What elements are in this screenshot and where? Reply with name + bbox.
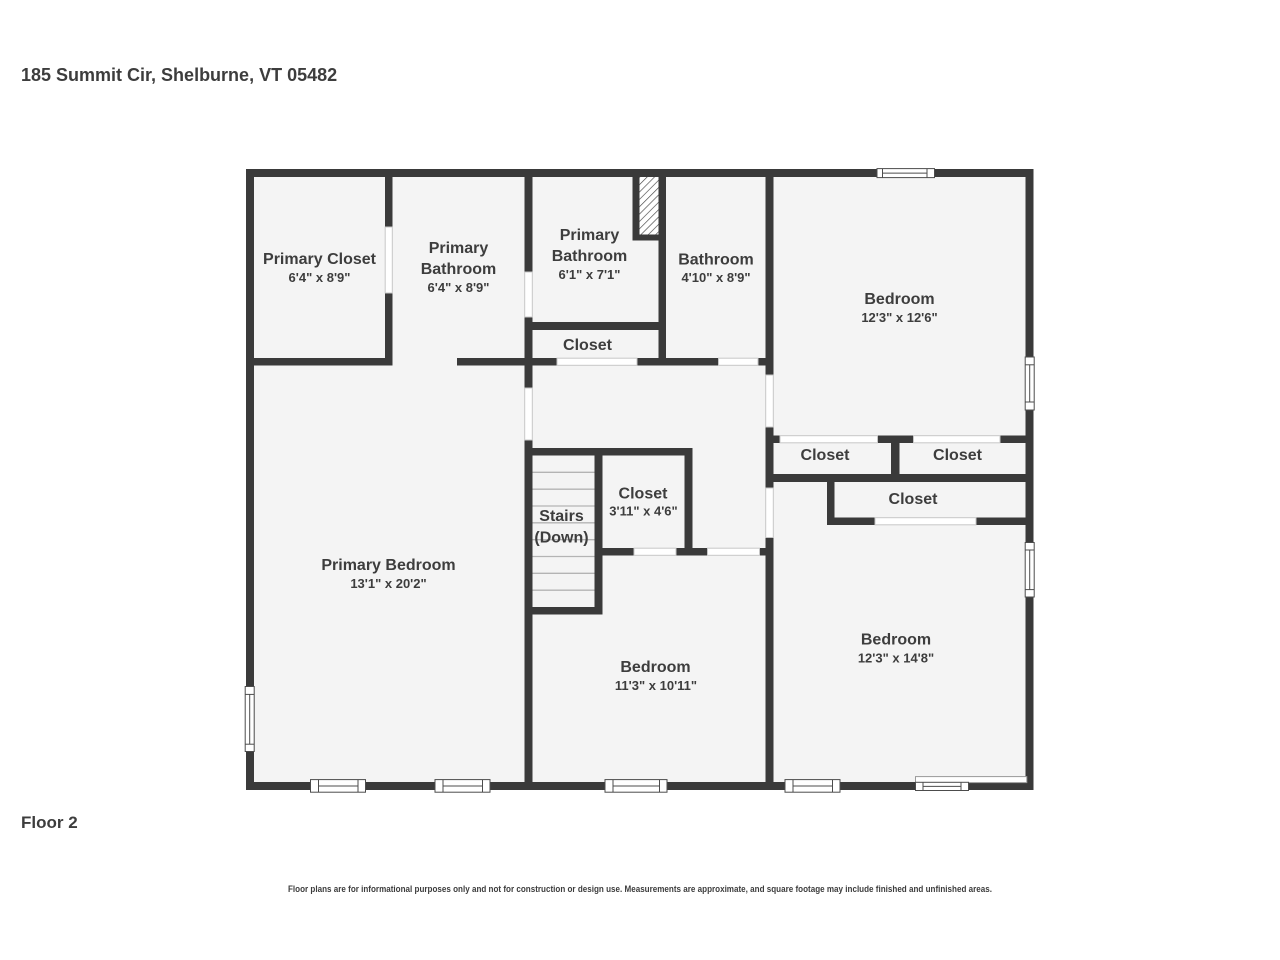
svg-text:Bathroom: Bathroom xyxy=(678,251,754,268)
svg-text:Bathroom: Bathroom xyxy=(552,248,628,265)
svg-text:4'10" x 8'9": 4'10" x 8'9" xyxy=(681,270,750,285)
svg-text:Primary Closet: Primary Closet xyxy=(263,251,377,268)
svg-text:Closet: Closet xyxy=(563,337,613,354)
svg-text:13'1" x 20'2": 13'1" x 20'2" xyxy=(350,576,426,591)
svg-text:Closet: Closet xyxy=(619,485,669,502)
svg-text:12'3" x 14'8": 12'3" x 14'8" xyxy=(858,651,934,666)
svg-text:6'1" x 7'1": 6'1" x 7'1" xyxy=(559,267,621,282)
svg-text:6'4" x 8'9": 6'4" x 8'9" xyxy=(289,270,351,285)
svg-text:12'3" x 12'6": 12'3" x 12'6" xyxy=(861,310,937,325)
svg-text:Bedroom: Bedroom xyxy=(620,659,690,676)
svg-text:11'3" x 10'11": 11'3" x 10'11" xyxy=(615,678,697,693)
svg-text:Primary: Primary xyxy=(429,240,489,257)
svg-text:3'11" x 4'6": 3'11" x 4'6" xyxy=(609,504,677,519)
svg-text:Closet: Closet xyxy=(889,491,939,508)
svg-text:6'4" x 8'9": 6'4" x 8'9" xyxy=(428,280,490,295)
svg-text:Closet: Closet xyxy=(801,447,851,464)
svg-text:185 Summit Cir, Shelburne, VT: 185 Summit Cir, Shelburne, VT 05482 xyxy=(21,65,337,85)
svg-text:Bedroom: Bedroom xyxy=(861,631,931,648)
svg-text:Bathroom: Bathroom xyxy=(421,261,497,278)
svg-text:Bedroom: Bedroom xyxy=(864,291,934,308)
svg-text:Stairs: Stairs xyxy=(539,508,584,525)
svg-text:(Down): (Down) xyxy=(534,529,588,546)
svg-text:Floor 2: Floor 2 xyxy=(21,813,78,832)
svg-text:Closet: Closet xyxy=(933,447,983,464)
svg-text:Primary: Primary xyxy=(560,227,620,244)
svg-text:Primary Bedroom: Primary Bedroom xyxy=(321,557,455,574)
svg-text:Floor plans are for informatio: Floor plans are for informational purpos… xyxy=(288,884,992,894)
